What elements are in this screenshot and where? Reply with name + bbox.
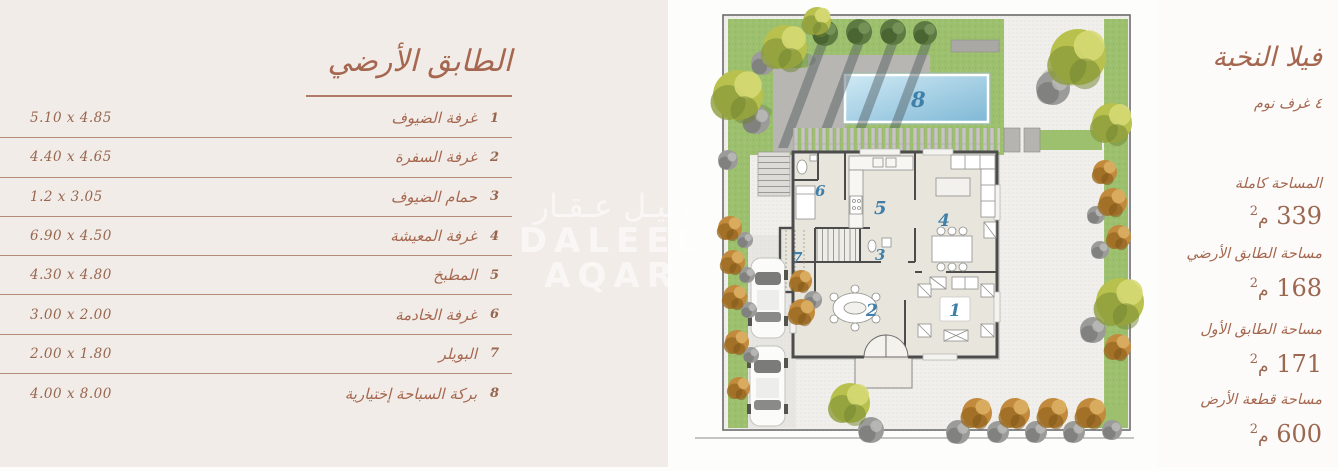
stat-unit: م <box>1258 209 1269 229</box>
room-number: 1 <box>490 111 512 126</box>
room-dimension: 5.10 x 4.85 <box>30 110 112 126</box>
room-number: 6 <box>490 307 512 322</box>
stat-unit: م <box>1258 357 1269 377</box>
room-table: 5.10 x 4.85 غرفة الضيوف 1 4.40 x 4.65 غر… <box>0 99 512 413</box>
stat-label-total-area: المساحة كاملة <box>1235 176 1322 192</box>
room-name: غرفة السفرة <box>395 148 477 166</box>
stat-label-plot-area: مساحة قطعة الأرض <box>1200 392 1322 408</box>
table-row: 4.30 x 4.80 المطبخ 5 <box>0 256 512 295</box>
room-number: 4 <box>490 229 512 244</box>
room-dimension: 4.40 x 4.65 <box>30 149 112 165</box>
room-name: البويلر <box>439 345 477 363</box>
stat-unit: م <box>1258 427 1269 447</box>
room-label-7: 7 <box>792 249 803 267</box>
table-row: 1.2 x 3.05 حمام الضيوف 3 <box>0 178 512 217</box>
entry-porch <box>855 357 912 388</box>
stat-label-ground-floor: مساحة الطابق الأرضي <box>1186 246 1322 262</box>
room-number: 8 <box>490 386 512 401</box>
garden-wall <box>951 40 999 52</box>
room-label-1: 1 <box>949 301 961 321</box>
house: 6 5 4 7 3 2 1 <box>780 149 1000 388</box>
room-label-4: 4 <box>938 211 950 231</box>
room-dimension: 3.00 x 2.00 <box>30 307 112 323</box>
stat-unit: م <box>1258 281 1269 301</box>
bedrooms-count: ٤ غرف نوم <box>1254 96 1322 112</box>
room-name: غرفة المعيشة <box>390 227 477 245</box>
stat-value-plot-area: 600 م2 <box>1250 420 1322 448</box>
room-dimension: 4.30 x 4.80 <box>30 267 112 283</box>
stat-unit-sup: 2 <box>1250 422 1258 437</box>
stat-value-total-area: 339 م2 <box>1250 202 1322 230</box>
site-plan: 8 <box>668 0 1160 467</box>
stat-value-first-floor: 171 م2 <box>1250 350 1322 378</box>
stat-unit-sup: 2 <box>1250 276 1258 291</box>
room-dimension: 1.2 x 3.05 <box>30 189 103 205</box>
floor-title: الطابق الأرضي <box>0 44 512 79</box>
stat-label-first-floor: مساحة الطابق الأول <box>1200 322 1322 338</box>
room-label-2: 2 <box>865 301 878 321</box>
table-row: 2.00 x 1.80 البويلر 7 <box>0 335 512 374</box>
stat-value-ground-floor: 168 م2 <box>1250 274 1322 302</box>
room-number: 3 <box>490 189 512 204</box>
table-row: 3.00 x 2.00 غرفة الخادمة 6 <box>0 295 512 334</box>
table-row: 4.00 x 8.00 بركة السباحة إختيارية 8 <box>0 374 512 413</box>
stat-unit-sup: 2 <box>1250 352 1258 367</box>
villa-title: فيلا النخبة <box>1212 42 1322 73</box>
room-name: حمام الضيوف <box>391 188 477 206</box>
stat-number: 339 <box>1276 202 1322 230</box>
car-1 <box>748 258 788 338</box>
stat-unit-sup: 2 <box>1250 204 1258 219</box>
room-number: 2 <box>490 150 512 165</box>
stat-number: 600 <box>1276 420 1322 448</box>
table-row: 4.40 x 4.65 غرفة السفرة 2 <box>0 138 512 177</box>
stat-number: 168 <box>1276 274 1322 302</box>
stat-number: 171 <box>1276 350 1322 378</box>
room-name: غرفة الخادمة <box>395 306 477 324</box>
room-dimension: 6.90 x 4.50 <box>30 228 112 244</box>
villa-info-panel: فيلا النخبة ٤ غرف نوم المساحة كاملة 339 … <box>1158 0 1338 467</box>
specs-panel: الطابق الأرضي 5.10 x 4.85 غرفة الضيوف 1 … <box>0 0 668 467</box>
room-label-5: 5 <box>874 198 887 219</box>
room-number: 7 <box>490 346 512 361</box>
site-plan-drawing: 8 <box>668 0 1160 467</box>
room-name: بركة السباحة إختيارية <box>345 385 477 403</box>
room-dimension: 4.00 x 8.00 <box>30 386 112 402</box>
room-label-3: 3 <box>875 246 885 264</box>
table-row: 5.10 x 4.85 غرفة الضيوف 1 <box>0 99 512 138</box>
room-number: 5 <box>490 268 512 283</box>
room-name: المطبخ <box>433 266 477 284</box>
title-underline <box>306 95 512 97</box>
room-dimension: 2.00 x 1.80 <box>30 346 112 362</box>
room-name: غرفة الضيوف <box>391 109 477 127</box>
room-label-6: 6 <box>815 182 826 200</box>
table-row: 6.90 x 4.50 غرفة المعيشة 4 <box>0 217 512 256</box>
